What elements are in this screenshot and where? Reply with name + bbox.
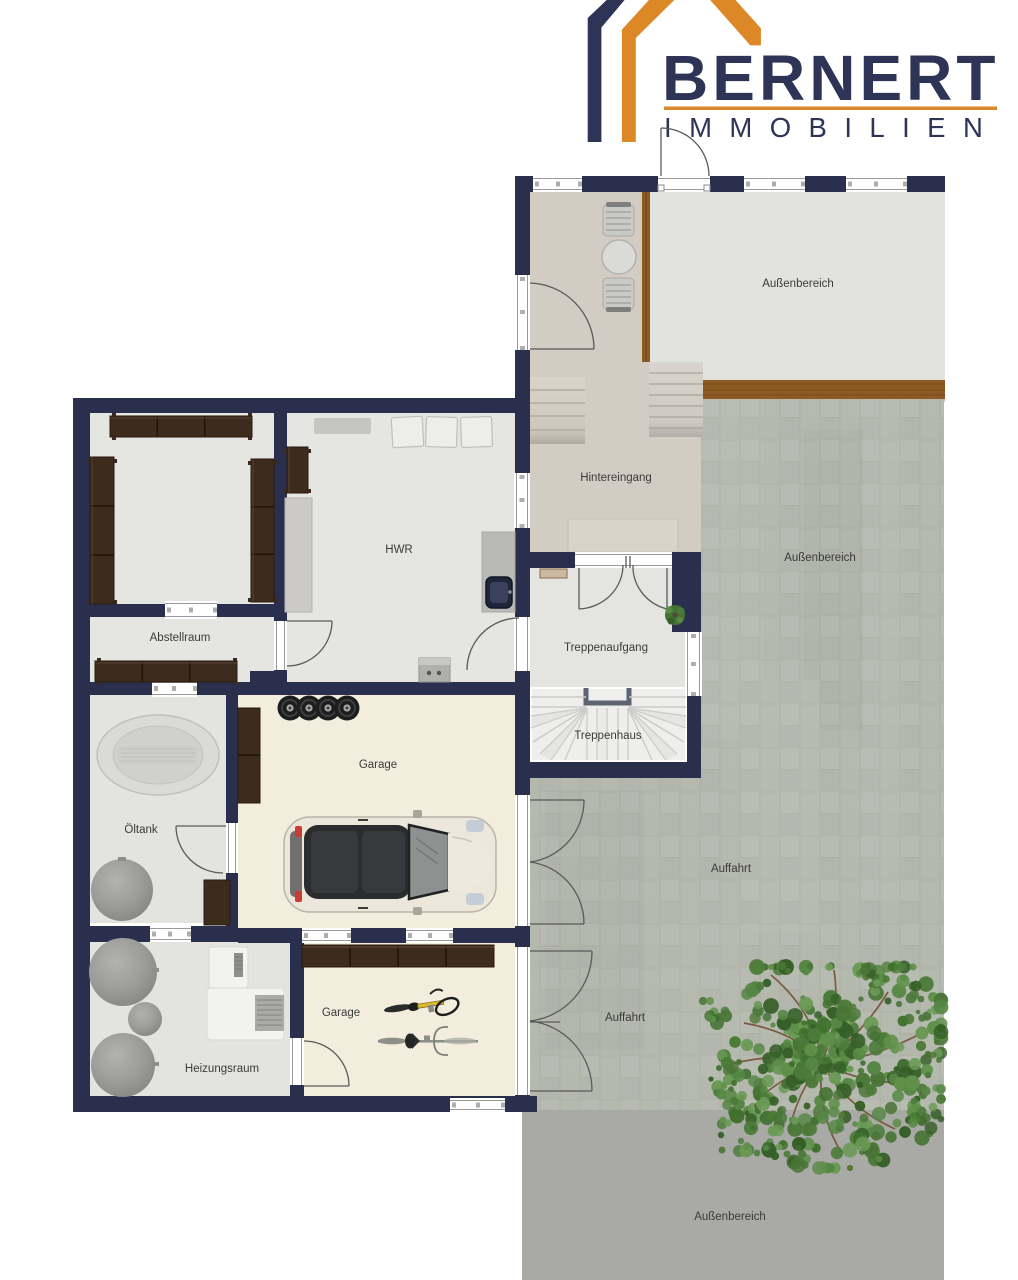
svg-text:Abstellraum: Abstellraum bbox=[150, 632, 211, 644]
svg-text:Heizungsraum: Heizungsraum bbox=[185, 1063, 259, 1075]
svg-text:Hintereingang: Hintereingang bbox=[580, 472, 652, 484]
svg-text:IMMOBILIEN: IMMOBILIEN bbox=[664, 112, 997, 143]
svg-text:Außenbereich: Außenbereich bbox=[694, 1211, 766, 1223]
svg-text:Auffahrt: Auffahrt bbox=[605, 1012, 646, 1024]
svg-text:Garage: Garage bbox=[322, 1007, 360, 1019]
svg-text:Treppenhaus: Treppenhaus bbox=[574, 730, 642, 742]
svg-text:Auffahrt: Auffahrt bbox=[711, 863, 752, 875]
svg-text:Treppenaufgang: Treppenaufgang bbox=[564, 642, 648, 654]
svg-text:BERNERT: BERNERT bbox=[662, 42, 999, 114]
svg-text:Garage: Garage bbox=[359, 759, 397, 771]
svg-text:Außenbereich: Außenbereich bbox=[762, 278, 834, 290]
svg-text:Außenbereich: Außenbereich bbox=[784, 552, 856, 564]
svg-text:Öltank: Öltank bbox=[124, 824, 157, 836]
svg-text:HWR: HWR bbox=[385, 544, 412, 556]
